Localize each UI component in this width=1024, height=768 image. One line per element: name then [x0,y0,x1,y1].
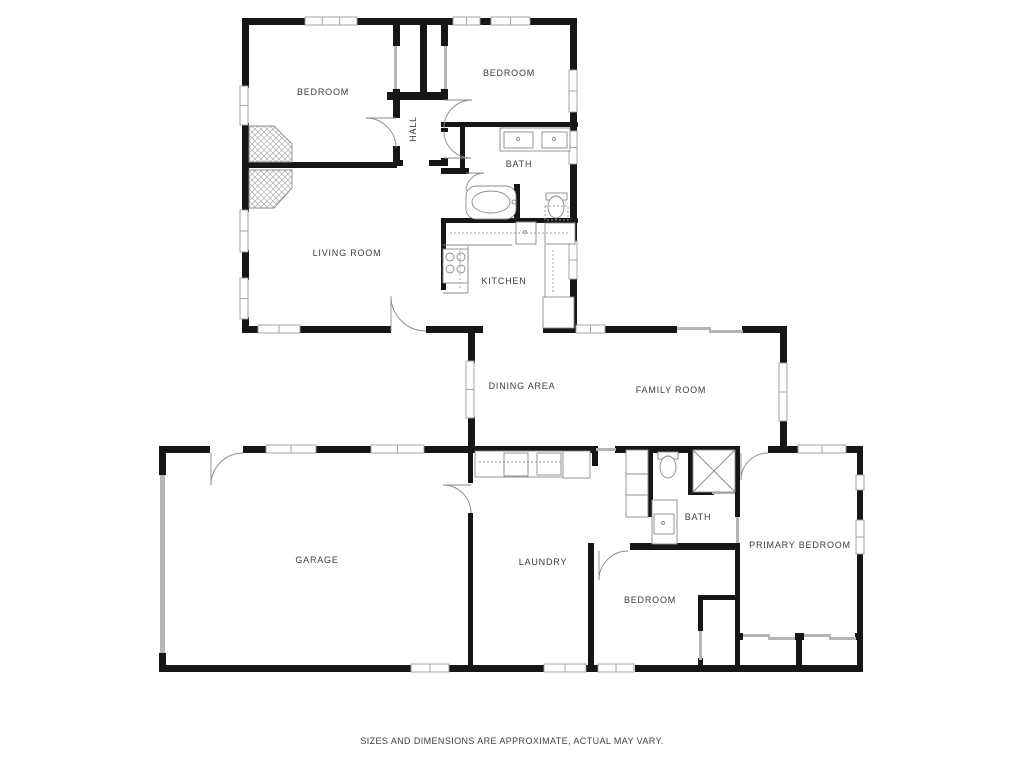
sliding-door [736,517,739,543]
wall-segment [688,453,693,495]
fixture-box [626,495,648,517]
wall-segment [468,333,475,363]
sliding-door [699,631,702,660]
wall-segment [159,665,413,672]
wall-segment [588,543,594,672]
room-label-dining-area: DINING AREA [489,381,556,391]
wall-segment [242,162,397,168]
wall-segment [735,543,740,667]
fixture-ellipse [548,196,564,218]
room-label-family-room: FAMILY ROOM [636,385,706,395]
wall-segment [768,446,800,453]
window [856,475,864,490]
floor-plan: BEDROOMBEDROOMHALLBATHLIVING ROOMKITCHEN… [0,0,1024,768]
fixture-box [563,451,590,478]
wall-segment [355,18,455,25]
wall-segment [441,158,448,166]
fixture-box [504,453,528,476]
wall-segment [857,446,863,477]
sliding-door [677,327,711,330]
room-label-living-room: LIVING ROOM [313,248,382,258]
fixture-ellipse [660,456,676,478]
garage-laundry-door [443,485,471,513]
wall-segment [630,543,740,550]
wall-segment [393,19,400,46]
wall-segment [449,665,546,672]
wall-segment [468,513,473,672]
bedroom-front-left-door [366,118,396,148]
wall-segment [796,640,802,667]
wall-segment [393,160,403,166]
wall-segment [570,110,577,133]
disclaimer-text: SIZES AND DIMENSIONS ARE APPROXIMATE, AC… [360,736,663,746]
wall-segment [698,600,703,631]
sliding-door [743,634,770,637]
garage-entry-door [211,453,243,485]
sliding-door [768,637,795,640]
wall-segment [603,326,677,333]
sliding-door [829,637,856,640]
living-room-exterior-door [391,296,426,331]
wall-segment [735,633,743,640]
wall-segment [795,633,804,640]
walls-layer [159,18,863,672]
wall-segment [780,326,787,365]
fireplace [249,170,292,208]
window [305,17,357,25]
bath-main-door [444,131,471,158]
wall-segment [242,18,307,25]
fixture-box [626,474,648,495]
room-label-primary-bedroom: PRIMARY BEDROOM [749,540,851,550]
wall-segment [242,326,260,333]
bedroom-third-door [599,551,628,580]
sliding-door [804,634,831,637]
wall-segment [468,453,473,483]
wall-segment [857,553,863,672]
wall-segment [441,19,448,46]
sliding-door [160,475,165,653]
wall-segment [441,168,469,174]
room-label-bedroom-front-right: BEDROOM [483,68,535,78]
fixture-ellipse [472,191,510,213]
wall-segment [460,127,465,172]
wall-segment [387,92,448,100]
room-label-hall: HALL [408,116,418,142]
sliding-door [394,46,397,89]
wall-segment [526,18,577,25]
sliding-door [444,46,447,89]
wall-segment [698,595,738,600]
sliding-door [596,448,616,451]
windows-layer [160,17,864,672]
wall-segment [162,446,210,453]
sliding-door [709,330,743,333]
fixture-box [626,450,648,474]
wall-segment [242,250,249,280]
fixtures-layer [249,126,735,544]
wall-segment [298,326,391,333]
fixture-box [545,223,575,244]
wall-segment [159,446,166,475]
room-label-laundry: LAUNDRY [519,557,567,567]
room-label-bedroom-third: BEDROOM [624,595,676,605]
room-label-kitchen: KITCHEN [481,276,526,286]
wall-segment [441,122,578,127]
wall-segment [316,446,372,453]
primary-bedroom-door [741,453,768,480]
room-label-garage: GARAGE [295,555,338,565]
wall-segment [570,18,577,72]
doors-layer [211,100,768,580]
wall-segment [243,446,267,453]
wall-segment [429,160,441,166]
floor-plan-image: BEDROOMBEDROOMHALLBATHLIVING ROOMKITCHEN… [0,0,1024,768]
wall-segment [426,326,483,333]
room-label-bedroom-front-left: BEDROOM [297,87,349,97]
fireplace [249,126,292,162]
wall-segment [735,453,740,517]
wall-segment [635,665,863,672]
room-label-bath-second: BATH [685,512,712,522]
wall-segment [441,128,448,132]
wall-segment [857,488,863,520]
wall-segment [420,19,427,92]
room-label-bath-main: BATH [506,159,533,169]
wall-segment [242,18,249,88]
fixture-box [537,453,561,475]
fixture-box [543,297,574,328]
